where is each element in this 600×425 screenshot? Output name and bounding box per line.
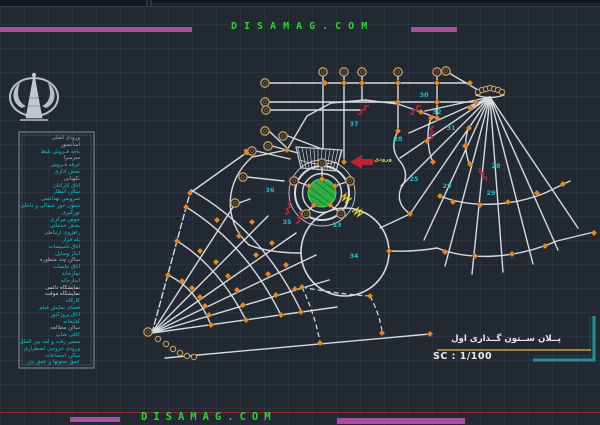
legend-line: کارگاه bbox=[0, 298, 80, 305]
legend-line: سرویس بهداشتی bbox=[0, 196, 80, 203]
room-number-label: 34 bbox=[349, 252, 358, 260]
legend-line: اتاق پروژکتور bbox=[0, 312, 80, 319]
legend-line: بخش اداری bbox=[0, 169, 80, 176]
legend-line: انبار وسایل bbox=[0, 251, 80, 258]
legend-line: باجه فـروش بلیط bbox=[0, 149, 80, 156]
plan-walls bbox=[152, 73, 594, 358]
legend-line: عمق ستونها و عمق بتن bbox=[0, 359, 80, 366]
room-number-label: 28 bbox=[491, 162, 500, 170]
legend-line: حوض مرکزی bbox=[0, 217, 80, 224]
legend-line: اتاق تاسیسات bbox=[0, 244, 80, 251]
legend-line: ستون خور شمالی و داخلی bbox=[0, 203, 80, 210]
legend-line: سالن اجتماعات bbox=[0, 353, 80, 360]
legend-line: فضای نمایش فیلم bbox=[0, 305, 80, 312]
room-number-label: 29 bbox=[442, 182, 451, 190]
room-number-label: 29 bbox=[486, 189, 495, 197]
stair-hatched bbox=[296, 147, 342, 171]
legend-line: کتابخانه bbox=[0, 319, 80, 326]
plan-title: پــلان ســتون گــذاری اول bbox=[430, 334, 582, 344]
room-number-label: 31 bbox=[446, 124, 455, 132]
plan-scale: SC : 1/100 bbox=[433, 351, 492, 362]
room-number-label: 30 bbox=[419, 91, 428, 99]
legend-line: آبدارخانه bbox=[0, 278, 80, 285]
cad-canvas: DISAMAG.COM DISAMAG.COM bbox=[0, 0, 600, 425]
legend-line: راهروی ارتباطی bbox=[0, 230, 80, 237]
plan-drawing bbox=[0, 0, 600, 425]
legend-line: بخش خدماتی bbox=[0, 223, 80, 230]
legend-line: ورودی اصلی bbox=[0, 135, 80, 142]
legend-list: ورودی اصلیآسانسورباجه فـروش بلیطسرسراغرف… bbox=[0, 135, 82, 366]
legend-line: آسانسور bbox=[0, 142, 80, 149]
legend-line: سرسرا bbox=[0, 155, 80, 162]
logo-emblem bbox=[10, 73, 58, 120]
legend-line: سالن مطالعه bbox=[0, 325, 80, 332]
legend-line: پله فرار bbox=[0, 237, 80, 244]
room-number-label: 35 bbox=[282, 218, 291, 226]
room-number-label: 32 bbox=[432, 108, 441, 116]
arrow-label: ورودی bbox=[374, 157, 392, 163]
room-number-label: 28 bbox=[393, 135, 402, 143]
legend-line: غرفه فـروش bbox=[0, 162, 80, 169]
room-number-label: 36 bbox=[265, 186, 274, 194]
legend-line: نگهبانی bbox=[0, 176, 80, 183]
legend-line: نمایشگاه موقت bbox=[0, 291, 80, 298]
legend-line: کافی شاپ bbox=[0, 332, 80, 339]
legend-line: نمایشگاه دائمی bbox=[0, 285, 80, 292]
legend-line: اتاق کارکنان bbox=[0, 183, 80, 190]
legend-line: سالن چند منظوره bbox=[0, 257, 80, 264]
legend-line: نورگیری bbox=[0, 210, 80, 217]
legend-line: نمازخانه bbox=[0, 271, 80, 278]
room-number-label: 37 bbox=[349, 120, 358, 128]
top-ticks bbox=[147, 0, 600, 6]
legend-line: سالن انتظار bbox=[0, 189, 80, 196]
legend-line: اتاق جلسات bbox=[0, 264, 80, 271]
room-number-label: 25 bbox=[409, 175, 418, 183]
direction-arrow bbox=[350, 155, 373, 169]
room-number-label: 33 bbox=[332, 221, 341, 229]
legend-line: مسیر رفت و آمد بین الملل bbox=[0, 339, 80, 346]
legend-line: ورودی خروجی اضطراری bbox=[0, 346, 80, 353]
